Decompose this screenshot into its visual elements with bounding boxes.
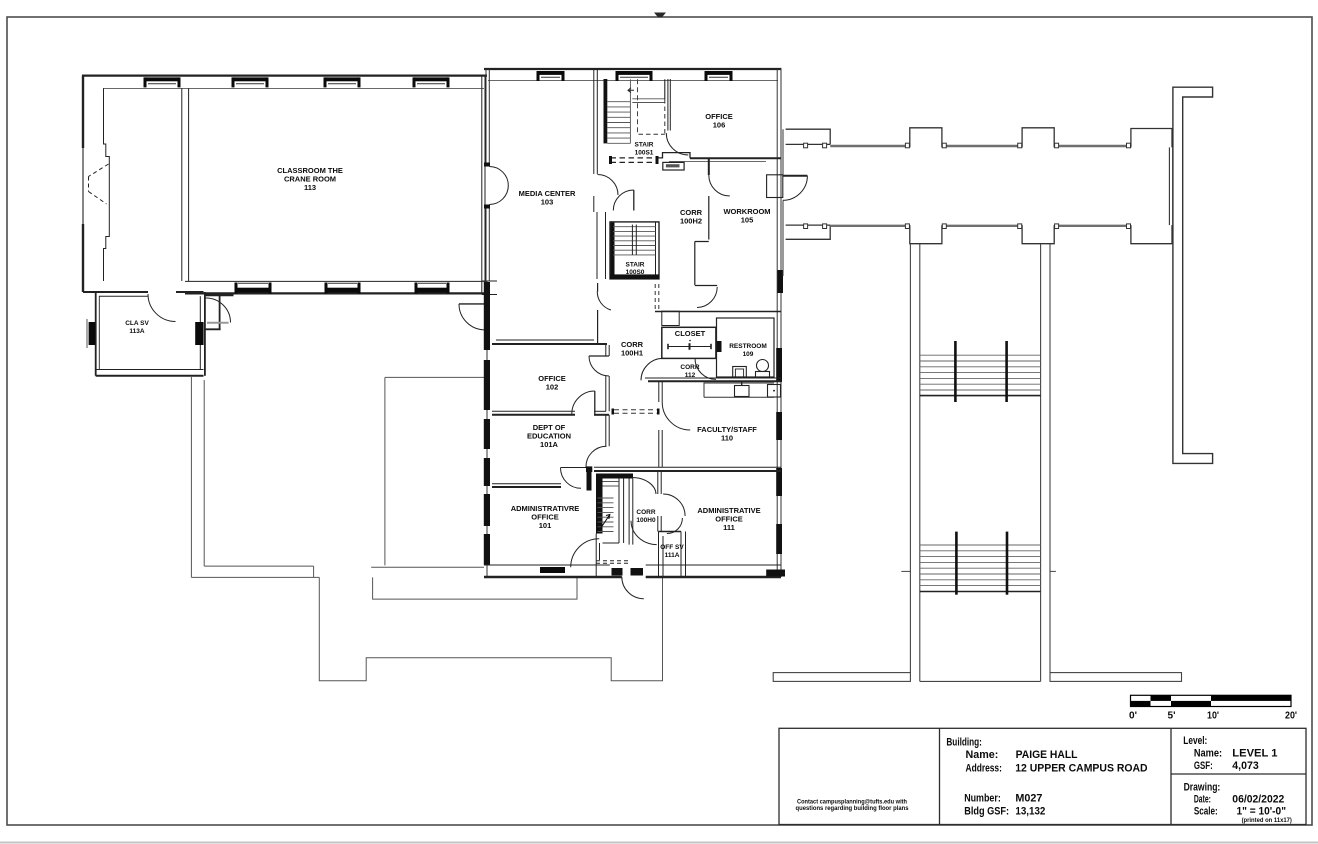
svg-text:12 UPPER CAMPUS ROAD: 12 UPPER CAMPUS ROAD xyxy=(1015,762,1147,774)
svg-text:Contact campusplanning@tufts.e: Contact campusplanning@tufts.edu with xyxy=(797,800,907,806)
svg-text:13,132: 13,132 xyxy=(1015,805,1045,817)
svg-text:1" = 10'-0": 1" = 10'-0" xyxy=(1237,805,1287,817)
svg-text:111: 111 xyxy=(723,523,735,532)
svg-text:CORR: CORR xyxy=(636,509,655,516)
svg-text:OFF SV: OFF SV xyxy=(660,544,684,551)
svg-text:Date:: Date: xyxy=(1194,793,1211,805)
svg-text:113A: 113A xyxy=(129,328,144,335)
svg-text:113: 113 xyxy=(304,183,316,192)
svg-text:Drawing:: Drawing: xyxy=(1184,782,1221,794)
svg-text:111A: 111A xyxy=(665,552,680,559)
svg-text:105: 105 xyxy=(741,216,754,225)
svg-text:5': 5' xyxy=(1168,711,1176,722)
svg-text:Name:: Name: xyxy=(1194,748,1222,760)
svg-text:103: 103 xyxy=(541,198,554,207)
svg-text:109: 109 xyxy=(743,351,754,358)
svg-text:STAIR: STAIR xyxy=(634,142,653,149)
svg-text:06/02/2022: 06/02/2022 xyxy=(1232,793,1284,805)
svg-text:102: 102 xyxy=(546,383,559,392)
svg-text:100S0: 100S0 xyxy=(626,269,645,276)
svg-text:PAIGE HALL: PAIGE HALL xyxy=(1016,749,1078,761)
svg-text:STAIR: STAIR xyxy=(625,262,644,269)
svg-text:M027: M027 xyxy=(1015,793,1042,805)
svg-text:questions regarding building f: questions regarding building floor plans xyxy=(796,806,910,812)
svg-text:CLOSET: CLOSET xyxy=(675,329,706,338)
svg-text:LEVEL 1: LEVEL 1 xyxy=(1232,748,1277,760)
svg-text:Number:: Number: xyxy=(964,793,1001,805)
svg-text:100H0: 100H0 xyxy=(636,517,656,524)
svg-text:(printed on 11x17): (printed on 11x17) xyxy=(1242,818,1292,824)
svg-text:4,073: 4,073 xyxy=(1232,760,1258,772)
svg-text:100H2: 100H2 xyxy=(680,217,702,226)
svg-text:Scale:: Scale: xyxy=(1194,805,1218,817)
svg-text:106: 106 xyxy=(713,121,726,130)
svg-text:Name:: Name: xyxy=(966,749,999,761)
svg-text:110: 110 xyxy=(721,434,733,443)
svg-text:Address:: Address: xyxy=(966,762,1002,774)
svg-text:CLA SV: CLA SV xyxy=(125,320,149,327)
svg-text:100S1: 100S1 xyxy=(635,150,654,157)
svg-text:101: 101 xyxy=(539,521,552,530)
svg-text:20': 20' xyxy=(1285,711,1297,722)
svg-text:GSF:: GSF: xyxy=(1194,760,1213,772)
svg-text:0': 0' xyxy=(1129,711,1137,722)
svg-text:100H1: 100H1 xyxy=(621,349,643,358)
svg-text:10': 10' xyxy=(1207,711,1219,722)
svg-text:RESTROOM: RESTROOM xyxy=(729,343,767,350)
svg-text:101A: 101A xyxy=(540,440,559,449)
svg-text:Level:: Level: xyxy=(1183,735,1207,747)
svg-text:Bldg GSF:: Bldg GSF: xyxy=(964,805,1009,817)
svg-text:Building:: Building: xyxy=(946,737,982,749)
